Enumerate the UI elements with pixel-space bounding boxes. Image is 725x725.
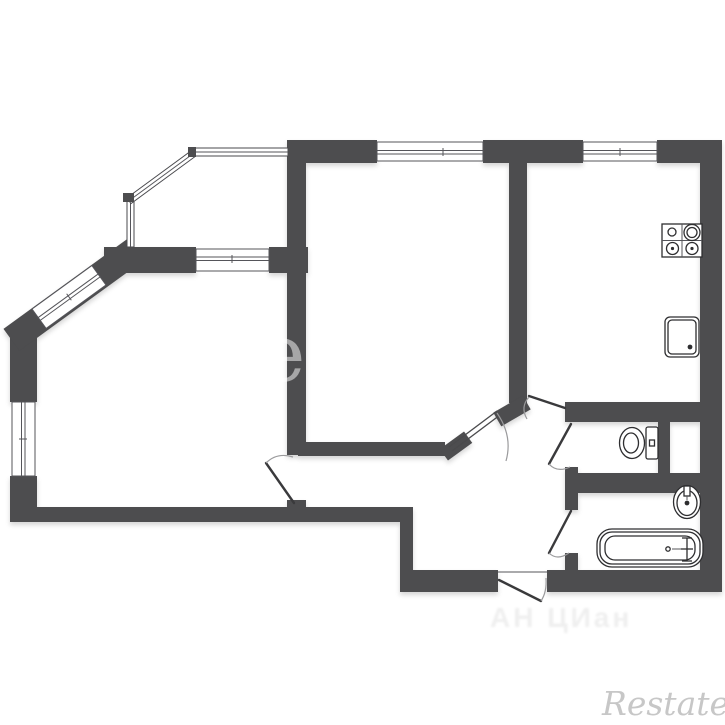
bedroom-chamfer-stub bbox=[440, 432, 472, 461]
front-door bbox=[498, 572, 547, 601]
bottom-wall-segment-1 bbox=[413, 570, 498, 592]
right-wall bbox=[700, 140, 722, 592]
step-wall bbox=[400, 507, 413, 592]
window-bedroom bbox=[377, 142, 483, 161]
bath-west-stub-top bbox=[565, 493, 578, 510]
bath-west-stub-bottom bbox=[565, 553, 578, 592]
wc-bath-divider-wall bbox=[565, 473, 722, 493]
wc-door bbox=[549, 424, 571, 469]
living-room-door bbox=[266, 455, 294, 503]
kitchen-sink bbox=[665, 317, 699, 357]
living-room-door-stub bbox=[287, 500, 306, 514]
bay-corner-cap-left bbox=[123, 193, 134, 202]
fixtures bbox=[597, 224, 703, 567]
window-bay-bottom bbox=[196, 249, 269, 271]
left-wall-lower bbox=[10, 476, 37, 522]
kitchen-door bbox=[524, 396, 565, 419]
walls bbox=[3, 140, 722, 592]
bedroom-south-wall bbox=[298, 442, 445, 456]
bay-bottom-wall-left bbox=[104, 247, 196, 273]
floor-plan bbox=[0, 0, 725, 725]
window-kitchen bbox=[583, 142, 657, 161]
living-room-right-wall bbox=[287, 140, 306, 455]
bathroom-door bbox=[549, 511, 571, 557]
top-wall-segment-2 bbox=[483, 140, 583, 163]
bay-corner-cap-top bbox=[188, 147, 196, 157]
toilet bbox=[620, 427, 659, 459]
kitchen-south-wall bbox=[565, 402, 701, 422]
bedroom-kitchen-wall bbox=[509, 163, 527, 403]
lower-left-bottom-wall bbox=[10, 507, 400, 522]
wash-basin bbox=[674, 486, 701, 519]
bathtub bbox=[597, 529, 703, 567]
window-left bbox=[12, 402, 35, 476]
wc-east-wall bbox=[658, 415, 670, 473]
window-diagonal bbox=[32, 266, 106, 329]
windows bbox=[12, 142, 657, 476]
floor-plan-canvas: e АН ЦИан Restate bbox=[0, 0, 725, 725]
bay-window bbox=[123, 147, 288, 247]
stove bbox=[662, 224, 702, 257]
